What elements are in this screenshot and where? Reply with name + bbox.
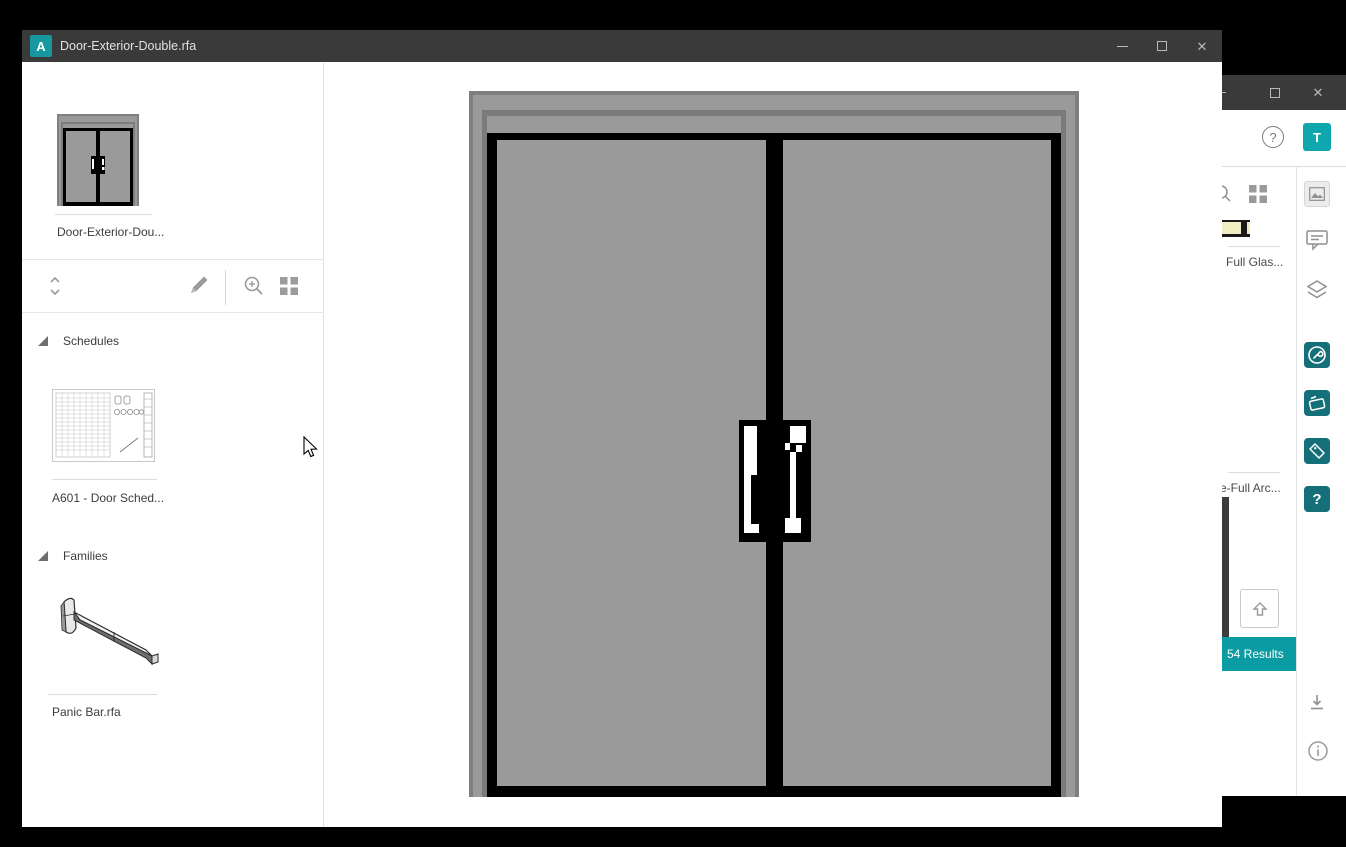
app-logo-letter: A [36,39,45,54]
download-icon [1307,692,1327,712]
bg-close-button[interactable]: ✕ [1302,75,1334,110]
layers-icon [1304,277,1330,303]
upload-button[interactable] [1240,589,1279,628]
tags-button[interactable] [1304,438,1330,464]
image-icon [1309,187,1325,201]
close-icon: ✕ [1197,40,1208,53]
layers-button[interactable] [1304,277,1330,303]
app-logo: A [30,35,52,57]
toolbar-divider [225,270,226,305]
avatar[interactable]: T [1303,123,1331,151]
result-divider [1228,472,1280,473]
results-badge-label: 54 Results [1227,647,1284,661]
results-badge[interactable]: 54 Results [1222,637,1296,671]
image-view-button[interactable] [1304,181,1330,207]
section-header-schedules[interactable]: Schedules [38,334,119,348]
maximize-icon [1157,41,1167,51]
section-expand-icon [38,336,48,346]
section-label: Schedules [63,334,119,348]
sidebar: Door-Exterior-Dou... [22,62,324,827]
panic-bar-thumbnail[interactable] [48,590,162,680]
result-divider [1228,246,1280,247]
sort-chevrons-icon[interactable] [48,273,62,299]
stack-icon [1307,393,1327,413]
schedule-thumbnail-label: A601 - Door Sched... [52,491,164,505]
bg-maximize-button[interactable] [1259,75,1291,110]
close-button[interactable]: ✕ [1186,30,1218,62]
fix-tool-button[interactable] [1304,342,1330,368]
panic-hardware [739,418,811,544]
scrollbar-thumb[interactable] [1222,497,1229,637]
minimize-icon [1117,46,1128,47]
comments-button[interactable] [1306,229,1328,251]
titlebar[interactable]: A Door-Exterior-Double.rfa ✕ [22,30,1222,62]
family-thumbnail-label: Door-Exterior-Dou... [57,225,164,239]
help-button[interactable]: ? [1262,126,1284,148]
schedule-thumbnail[interactable] [52,389,155,462]
mouse-cursor [303,436,319,460]
grid-view-icon[interactable] [1249,185,1267,203]
comment-icon [1306,229,1328,251]
wrench-circle-icon [1307,345,1327,365]
help-icon: ? [1269,130,1276,145]
result-thumbnail-partial[interactable] [1222,220,1250,237]
rail-divider [1296,166,1297,796]
section-label: Families [63,549,108,563]
thumb-underline [55,214,152,215]
window-title: Door-Exterior-Double.rfa [60,30,196,62]
thumbnail-grid-icon[interactable] [280,277,298,295]
result-item-label[interactable]: e-Full Arc... [1220,481,1281,495]
question-icon: ? [1312,491,1321,508]
minimize-button[interactable] [1106,30,1138,62]
thumb-underline [52,479,157,480]
section-header-families[interactable]: Families [38,549,108,563]
avatar-letter: T [1313,130,1321,145]
collections-button[interactable] [1304,390,1330,416]
door-leaf-left [497,140,766,786]
door-preview [469,91,1079,797]
family-viewer-window: A Door-Exterior-Double.rfa ✕ [22,30,1222,827]
sidebar-toolbar [22,259,324,313]
panic-bar-thumbnail-label: Panic Bar.rfa [52,705,121,719]
edit-pencil-icon[interactable] [188,274,210,296]
maximize-icon [1270,88,1280,98]
upload-arrow-icon [1251,600,1269,618]
question-button[interactable]: ? [1304,486,1330,512]
result-item-label[interactable]: Full Glas... [1226,255,1283,269]
zoom-in-icon[interactable] [243,275,265,297]
family-thumbnail[interactable] [57,114,139,206]
tag-icon [1307,441,1327,461]
info-button[interactable] [1307,740,1329,762]
thumb-underline [48,694,157,695]
close-icon: ✕ [1313,86,1324,99]
section-expand-icon [38,551,48,561]
maximize-button[interactable] [1146,30,1178,62]
download-button[interactable] [1307,692,1327,712]
info-icon [1307,740,1329,762]
door-leaf-right [783,140,1051,786]
